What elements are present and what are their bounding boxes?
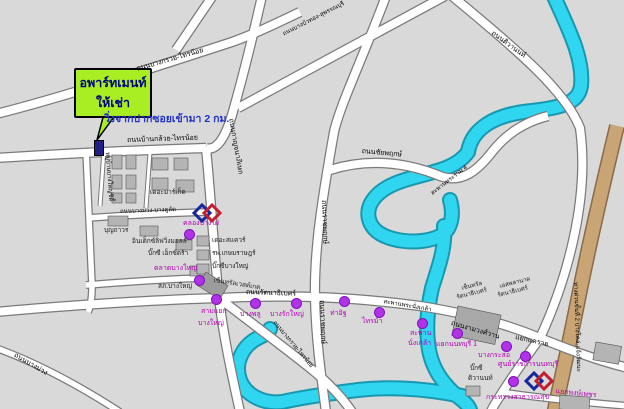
place-label-bigc-extra: บิ๊กซี เอ็กซ์ตร้า: [148, 251, 188, 258]
road-label-ratchaphruek-s: ถนนราชพฤกษ์: [318, 300, 327, 344]
distance-note: วิ่งจากปากซอยเข้ามา 2 กม.: [104, 110, 229, 127]
place-label-kasemrad: รพ.เกษมราษฎร์: [212, 251, 256, 258]
place-label-bigc-bang-yai: บิ๊กซีบางใหญ่: [212, 264, 248, 271]
place-label-bigc-tiwanon-1: บิ๊กซี: [470, 366, 482, 373]
station-label-civic-center: ศูนย์ราชการนนทบุรี: [498, 361, 558, 368]
station-dot-yaek-nonthaburi-1: [452, 328, 463, 339]
station-label-tha-it: ท่าอิฐ: [330, 310, 347, 317]
map-canvas: อพาร์ทเมนท์ ให้เช่า วิ่งจากปากซอยเข้ามา …: [0, 0, 624, 409]
station-dot-bang-rak-yai: [291, 298, 302, 309]
station-dot-tha-it: [339, 296, 350, 307]
callout-line1: อพาร์ทเมนท์: [78, 73, 148, 93]
station-dot-talat-bang-yai: [194, 275, 205, 286]
station-label-sam-yaek-2: บางใหญ่: [198, 320, 224, 327]
map-geography: [0, 0, 624, 409]
station-dot-bang-kraso: [501, 341, 512, 352]
station-dot-bang-phlu: [250, 298, 261, 309]
station-label-pnk-1: สะพาน: [410, 330, 431, 337]
station-label-yaek-nonthaburi-1: แยกนนทบุรี 1: [436, 341, 477, 348]
station-dot-phra-nang-klao: [417, 318, 428, 329]
apartment-marker-icon: [94, 140, 104, 156]
station-label-talat-bang-yai: ตลาดบางใหญ่: [154, 265, 197, 272]
station-label-bang-rak-yai: บางรักใหญ่: [270, 311, 304, 318]
station-label-pnk-2: นั่งเกล้า: [408, 340, 431, 347]
station-label-sai-ma: ไทรม้า: [362, 318, 382, 325]
station-dot-sai-ma: [374, 307, 385, 318]
station-label-bang-phlu: บางพลู: [240, 311, 261, 318]
station-dot-sam-yaek-bang-yai: [211, 294, 222, 305]
road-label-ratchaphruek-n: ถนนราชพฤกษ์: [320, 200, 329, 244]
place-label-boonthavorn: บุญถาวร: [104, 228, 128, 235]
place-label-bigc-tiwanon-2: ติวานนท์: [468, 376, 493, 383]
station-label-ministry-health: กระทรวงสาธารณสุข: [486, 394, 549, 401]
station-dot-ministry-health: [508, 376, 519, 387]
station-label-bang-kraso: บางกระสอ: [478, 352, 510, 359]
road-fills: [0, 0, 624, 409]
place-label-the-square: เดอะสแควร์: [212, 238, 245, 245]
mrt-logo-icon: [192, 203, 222, 223]
place-label-index: อินเด็กซ์ลิฟวิ่งมอลล์: [132, 239, 187, 246]
place-label-police-bang-yai: สภ.บางใหญ่: [158, 284, 192, 291]
place-label-the-market: เดอะมาร์เก็ต: [150, 190, 186, 197]
station-label-sam-yaek-1: สามแยก: [201, 308, 227, 315]
mrt-logo-icon: [524, 371, 554, 391]
